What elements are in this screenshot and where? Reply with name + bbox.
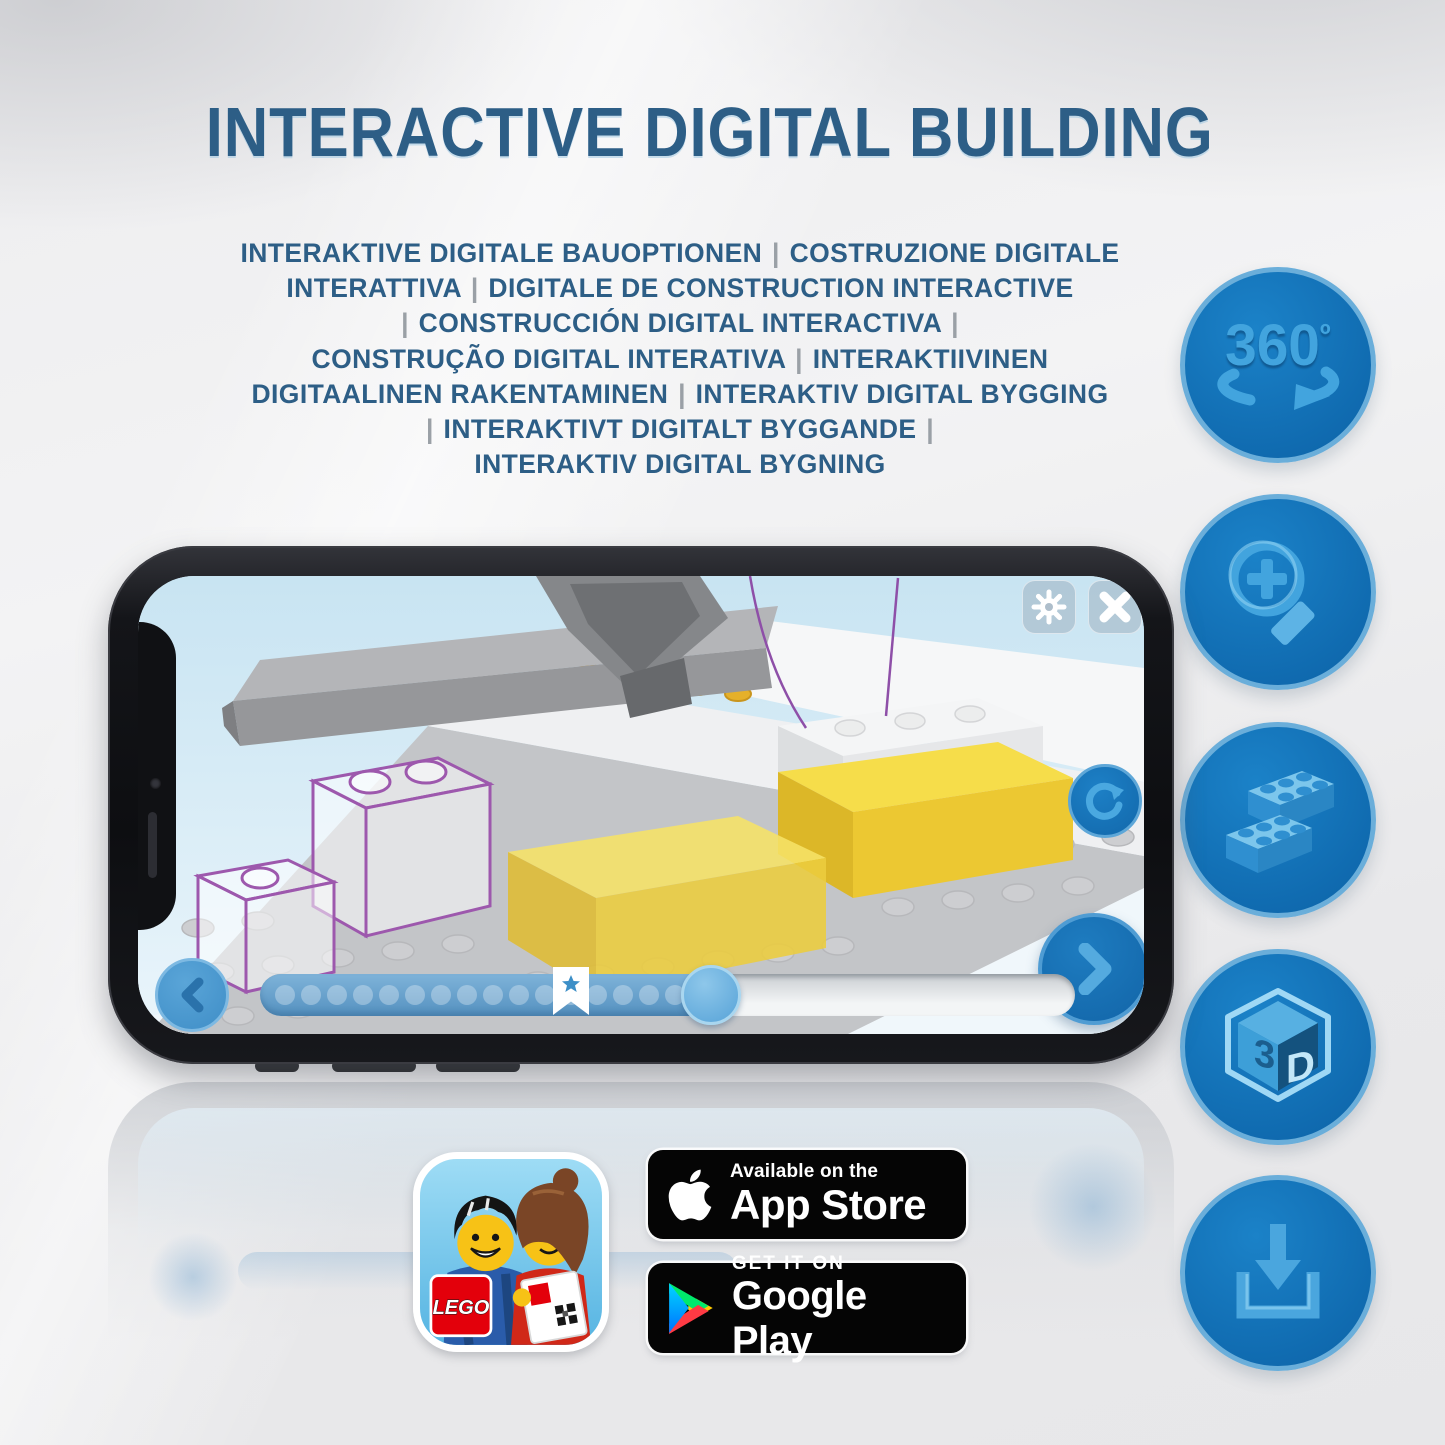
- progress-dot: [509, 985, 529, 1005]
- feature-3d-badge: 3 D: [1180, 949, 1376, 1145]
- refresh-icon: [1084, 780, 1126, 822]
- lego-logo: LEGO: [431, 1276, 491, 1336]
- building-bricks-icon: [1210, 757, 1346, 883]
- feature-download-badge: [1180, 1175, 1376, 1371]
- lego-app-icon[interactable]: LEGO: [413, 1152, 609, 1352]
- front-camera: [150, 778, 161, 789]
- qr-paper: [521, 1271, 588, 1344]
- progress-dot: [275, 985, 295, 1005]
- download-icon: [1219, 1214, 1337, 1332]
- progress-dot: [327, 985, 347, 1005]
- earpiece-speaker: [148, 812, 157, 878]
- lego-app-artwork: LEGO: [420, 1159, 602, 1345]
- page-title-text: INTERACTIVE DIGITAL BUILDING: [206, 92, 1214, 172]
- gear-icon: [1031, 589, 1067, 625]
- multilingual-subtitle: INTERAKTIVE DIGITALE BAUOPTIONEN | COSTR…: [150, 236, 1210, 483]
- progress-dot: [639, 985, 659, 1005]
- marketing-page: INTERACTIVE DIGITAL BUILDING INTERAKTIVE…: [0, 0, 1445, 1445]
- svg-text:LEGO: LEGO: [433, 1297, 490, 1319]
- progress-dot: [613, 985, 633, 1005]
- progress-dot: [483, 985, 503, 1005]
- app-screen: [138, 576, 1144, 1034]
- progress-dot: [405, 985, 425, 1005]
- phone-reflection: [108, 1082, 1174, 1412]
- build-progress-bar[interactable]: [260, 974, 1075, 1016]
- google-play-badge[interactable]: GET IT ON Google Play: [648, 1263, 966, 1353]
- google-play-name: Google Play: [732, 1274, 948, 1364]
- svg-text:3: 3: [1254, 1031, 1275, 1079]
- lego-3d-build-scene[interactable]: [138, 576, 1144, 1034]
- girl-minifigure: [511, 1168, 591, 1345]
- feature-bricks-badge: [1180, 722, 1376, 918]
- chevron-right-icon: [1073, 943, 1115, 995]
- app-store-badge[interactable]: Available on the App Store: [648, 1150, 966, 1239]
- progress-dot: [301, 985, 321, 1005]
- app-store-name: App Store: [730, 1181, 926, 1229]
- zoom-in-icon: [1217, 531, 1339, 653]
- google-play-logo-icon: [666, 1279, 716, 1337]
- progress-fill: [260, 974, 734, 1016]
- progress-thumb[interactable]: [681, 965, 741, 1025]
- svg-text:D: D: [1286, 1040, 1315, 1093]
- close-icon: [1098, 590, 1132, 624]
- google-play-tagline: GET IT ON: [732, 1253, 948, 1275]
- 360-rotation-icon: 360º: [1225, 320, 1331, 372]
- progress-dot: [587, 985, 607, 1005]
- progress-dot: [379, 985, 399, 1005]
- page-title: INTERACTIVE DIGITAL BUILDING: [0, 92, 1420, 172]
- progress-dot: [353, 985, 373, 1005]
- 3d-view-icon: 3 D: [1216, 987, 1340, 1107]
- smartphone-mockup: [108, 546, 1174, 1064]
- progress-dot: [431, 985, 451, 1005]
- star-icon: [561, 974, 581, 994]
- progress-dot: [457, 985, 477, 1005]
- feature-360-badge: 360º: [1180, 267, 1376, 463]
- rotate-view-button[interactable]: [1068, 764, 1142, 838]
- settings-button[interactable]: [1022, 580, 1076, 634]
- close-button[interactable]: [1088, 580, 1142, 634]
- progress-dot: [535, 985, 555, 1005]
- feature-zoom-badge: [1180, 494, 1376, 690]
- app-store-tagline: Available on the: [730, 1161, 926, 1183]
- chevron-left-icon: [177, 977, 207, 1013]
- previous-step-button[interactable]: [155, 958, 229, 1032]
- phone-notch: [138, 622, 176, 930]
- apple-logo-icon: [666, 1166, 714, 1224]
